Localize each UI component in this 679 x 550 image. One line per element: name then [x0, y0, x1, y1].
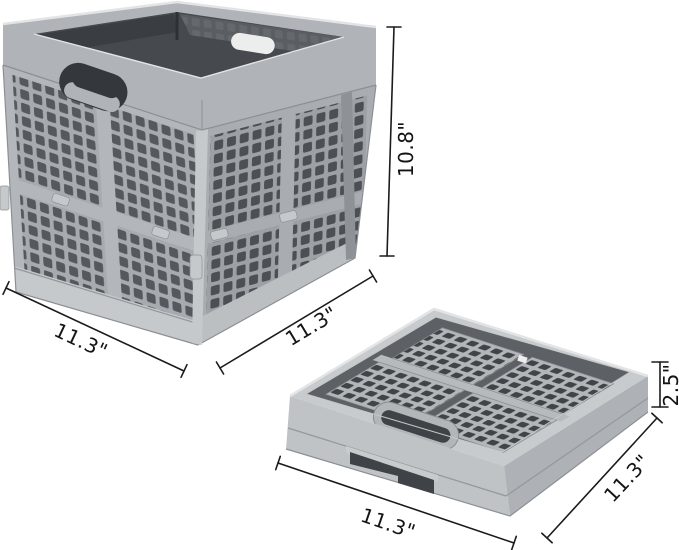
dimension-folded-height: 2.5": [652, 362, 679, 407]
product-illustration: 10.8" 11.3" 11.3" 11.3" 11.3" 2.5": [0, 0, 679, 550]
dimension-label-folded-height: 2.5": [659, 363, 679, 406]
dimension-label-assembled-width: 11.3": [50, 318, 111, 364]
dimension-label-folded-depth: 11.3": [599, 449, 655, 506]
product-image: 10.8" 11.3" 11.3" 11.3" 11.3" 2.5": [0, 0, 679, 550]
dimension-label-assembled-height: 10.8": [394, 121, 418, 177]
assembled-crate: [0, 2, 376, 345]
dimension-label-assembled-depth: 11.3": [281, 301, 342, 351]
dimension-assembled-height: 10.8": [380, 27, 418, 256]
dimension-label-folded-width: 11.3": [358, 503, 419, 544]
